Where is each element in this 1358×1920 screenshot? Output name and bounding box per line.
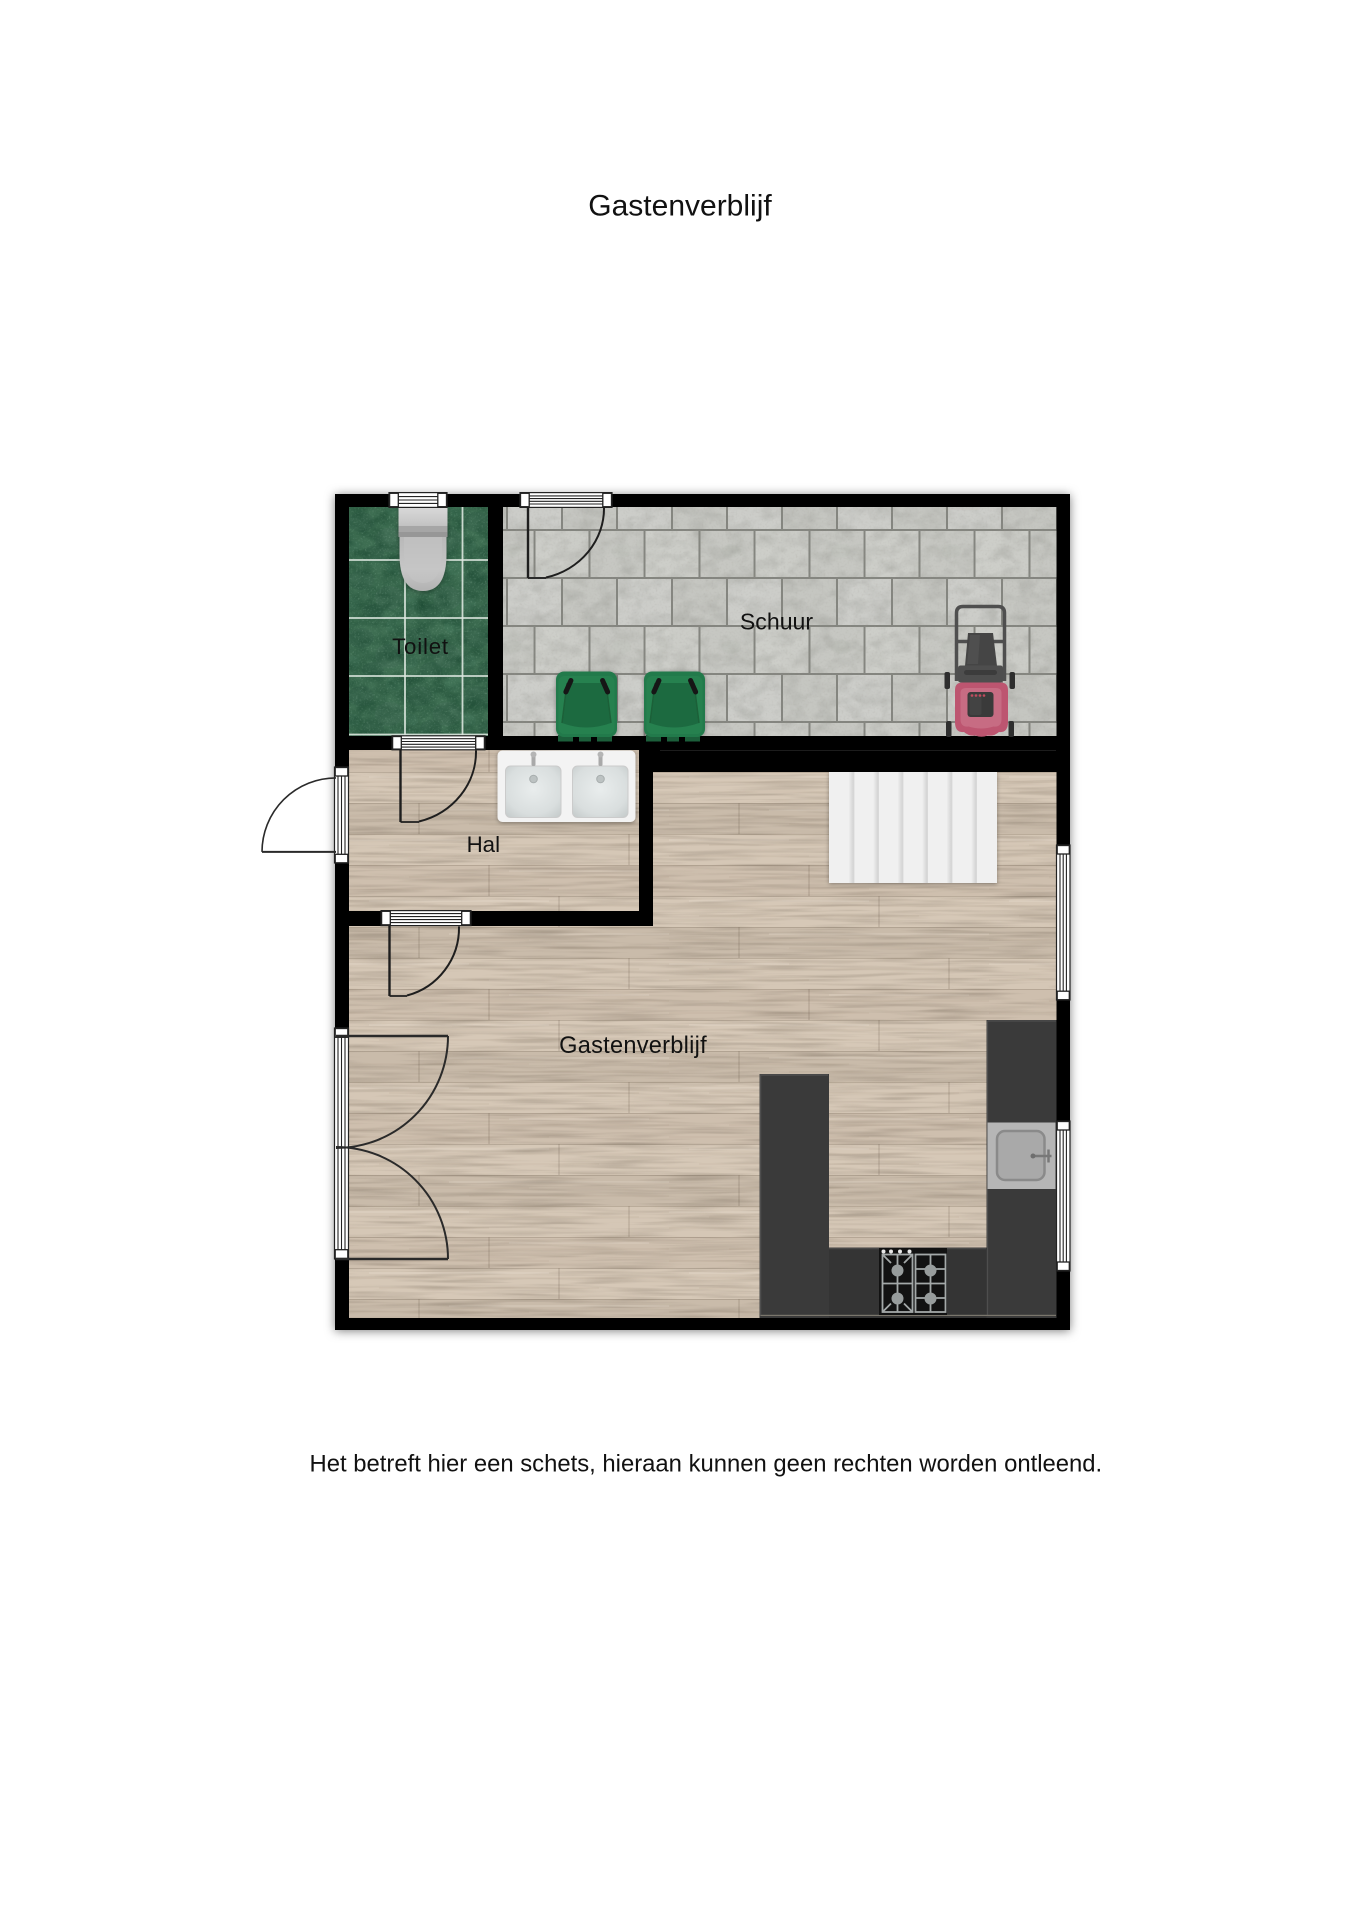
svg-text:Gastenverblijf: Gastenverblijf: [588, 190, 772, 223]
svg-text:Toilet: Toilet: [392, 634, 449, 659]
svg-text:Hal: Hal: [467, 832, 500, 857]
svg-text:Gastenverblijf: Gastenverblijf: [559, 1033, 707, 1059]
svg-text:Schuur: Schuur: [740, 609, 813, 635]
svg-text:Het betreft hier een schets, h: Het betreft hier een schets, hieraan kun…: [310, 1451, 1103, 1478]
